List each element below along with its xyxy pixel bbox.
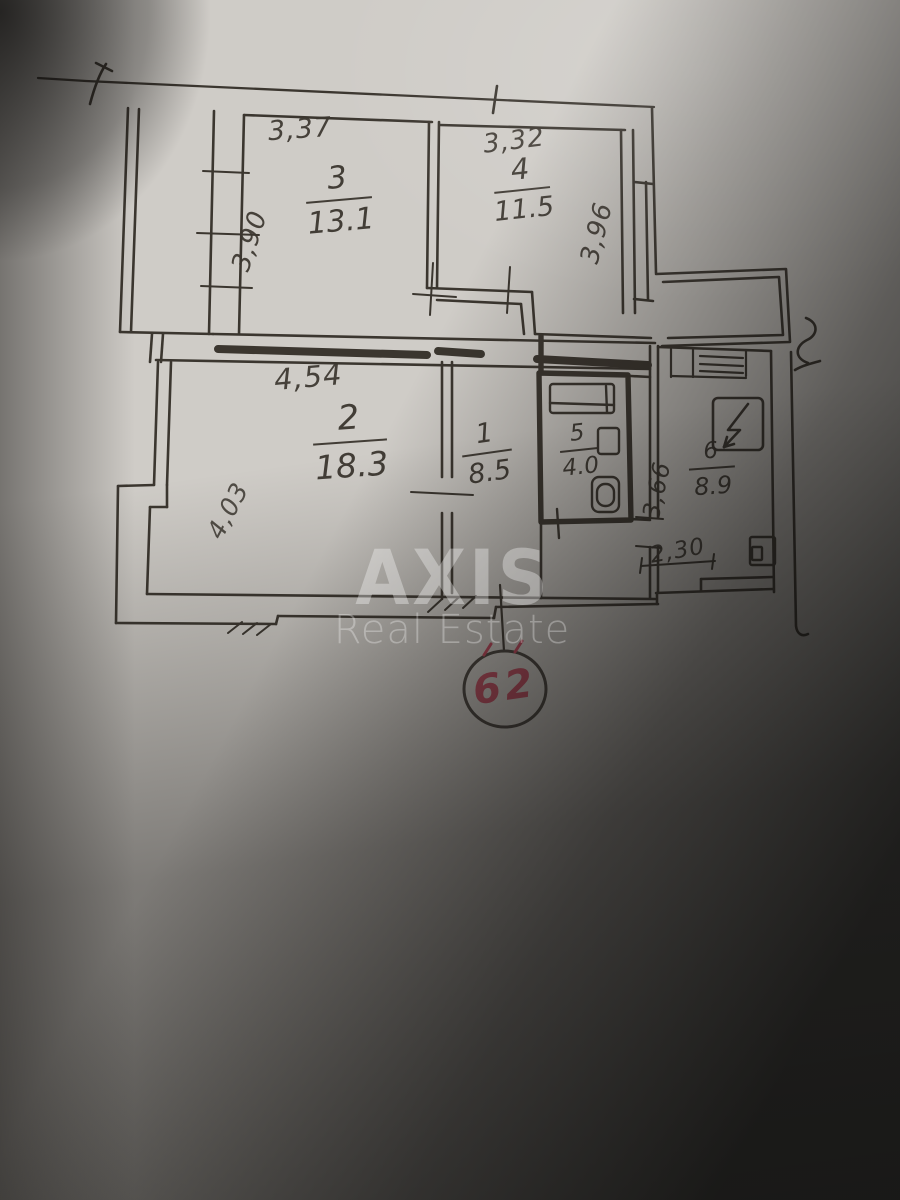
room-4-area: 11.5 xyxy=(493,191,556,228)
room-3-label: 3 13.1 xyxy=(291,156,388,243)
room-5-label: 5 4.0 xyxy=(548,417,610,483)
room-2-number: 2 xyxy=(336,397,360,438)
room-4-label: 4 11.5 xyxy=(478,148,565,229)
room-6-area: 8.9 xyxy=(693,471,733,502)
room-5-area: 4.0 xyxy=(561,452,600,482)
room-1-label: 1 8.5 xyxy=(447,413,526,492)
room-2-area: 18.3 xyxy=(314,443,390,487)
unit-number: 62 xyxy=(470,660,539,714)
dim-room3-width: 3,37 xyxy=(267,112,333,147)
room-3-area: 13.1 xyxy=(306,201,376,242)
dim-room2-width: 4,54 xyxy=(273,357,344,397)
room-2-label: 2 18.3 xyxy=(297,395,403,489)
floor-plan-photo: 3,37 3 13.1 3,90 3,32 4 11.5 3,96 4,54 2… xyxy=(0,0,900,1200)
room-1-area: 8.5 xyxy=(466,454,513,491)
dim-room6-passage: 2,30 xyxy=(648,533,707,568)
plan-labels: 3,37 3 13.1 3,90 3,32 4 11.5 3,96 4,54 2… xyxy=(0,0,900,1200)
room-6-fraction-bar xyxy=(689,465,735,470)
dim-room3-depth: 3,90 xyxy=(226,207,274,275)
dim-room6-depth: 3,66 xyxy=(637,459,676,521)
room-6-number: 6 xyxy=(703,438,719,465)
dim-room2-depth: 4,03 xyxy=(201,477,255,543)
dim-room4-depth: 3,96 xyxy=(575,199,619,266)
room-1-number: 1 xyxy=(474,417,495,450)
room-5-number: 5 xyxy=(569,419,586,446)
room-4-number: 4 xyxy=(509,151,531,187)
room-6-label: 6 8.9 xyxy=(680,436,744,502)
room-3-number: 3 xyxy=(326,159,349,197)
